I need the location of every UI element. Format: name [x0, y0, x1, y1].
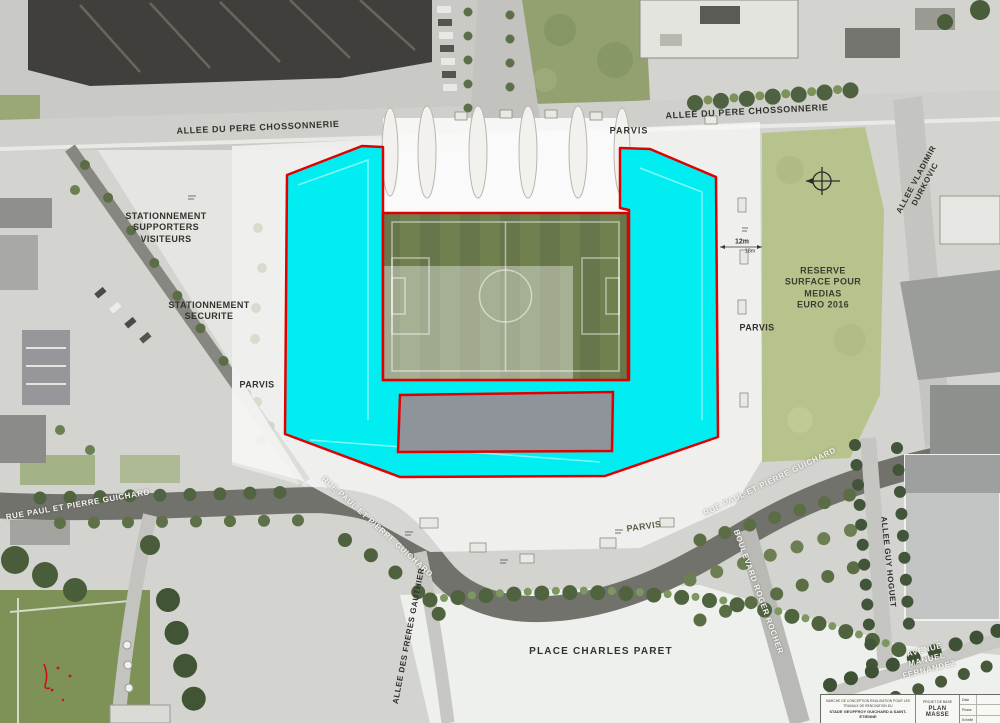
- drawing-title-block: MARCHE DE CONCEPTION REALISATION POUR LE…: [820, 694, 1000, 723]
- football-pitch: [383, 213, 628, 380]
- project-name: STADE GEOFFROY GUICHARD A SAINT-ETIENNE: [822, 709, 914, 719]
- meta-row-echelle: Echelle: [960, 716, 1000, 723]
- south-building-overlay: [398, 392, 613, 452]
- drawing-title: PLAN MASSE: [916, 706, 959, 718]
- title-block-title-cell: PROJET DE BASE PLAN MASSE: [916, 695, 960, 723]
- aerial-basemap: [0, 0, 1000, 723]
- project-description: MARCHE DE CONCEPTION REALISATION POUR LE…: [822, 699, 914, 707]
- title-block-meta-cell: Date Phase Echelle: [960, 695, 1000, 723]
- meta-row-date: Date: [960, 695, 1000, 705]
- project-phase: PROJET DE BASE: [923, 700, 952, 704]
- site-plan-map: ALLEE DU PERE CHOSSONNERIE PARVIS ALLEE …: [0, 0, 1000, 723]
- pitch-light-overlay: [383, 266, 573, 380]
- title-block-project-cell: MARCHE DE CONCEPTION REALISATION POUR LE…: [821, 695, 916, 723]
- meta-row-phase: Phase: [960, 705, 1000, 715]
- building-white-east: [940, 196, 1000, 244]
